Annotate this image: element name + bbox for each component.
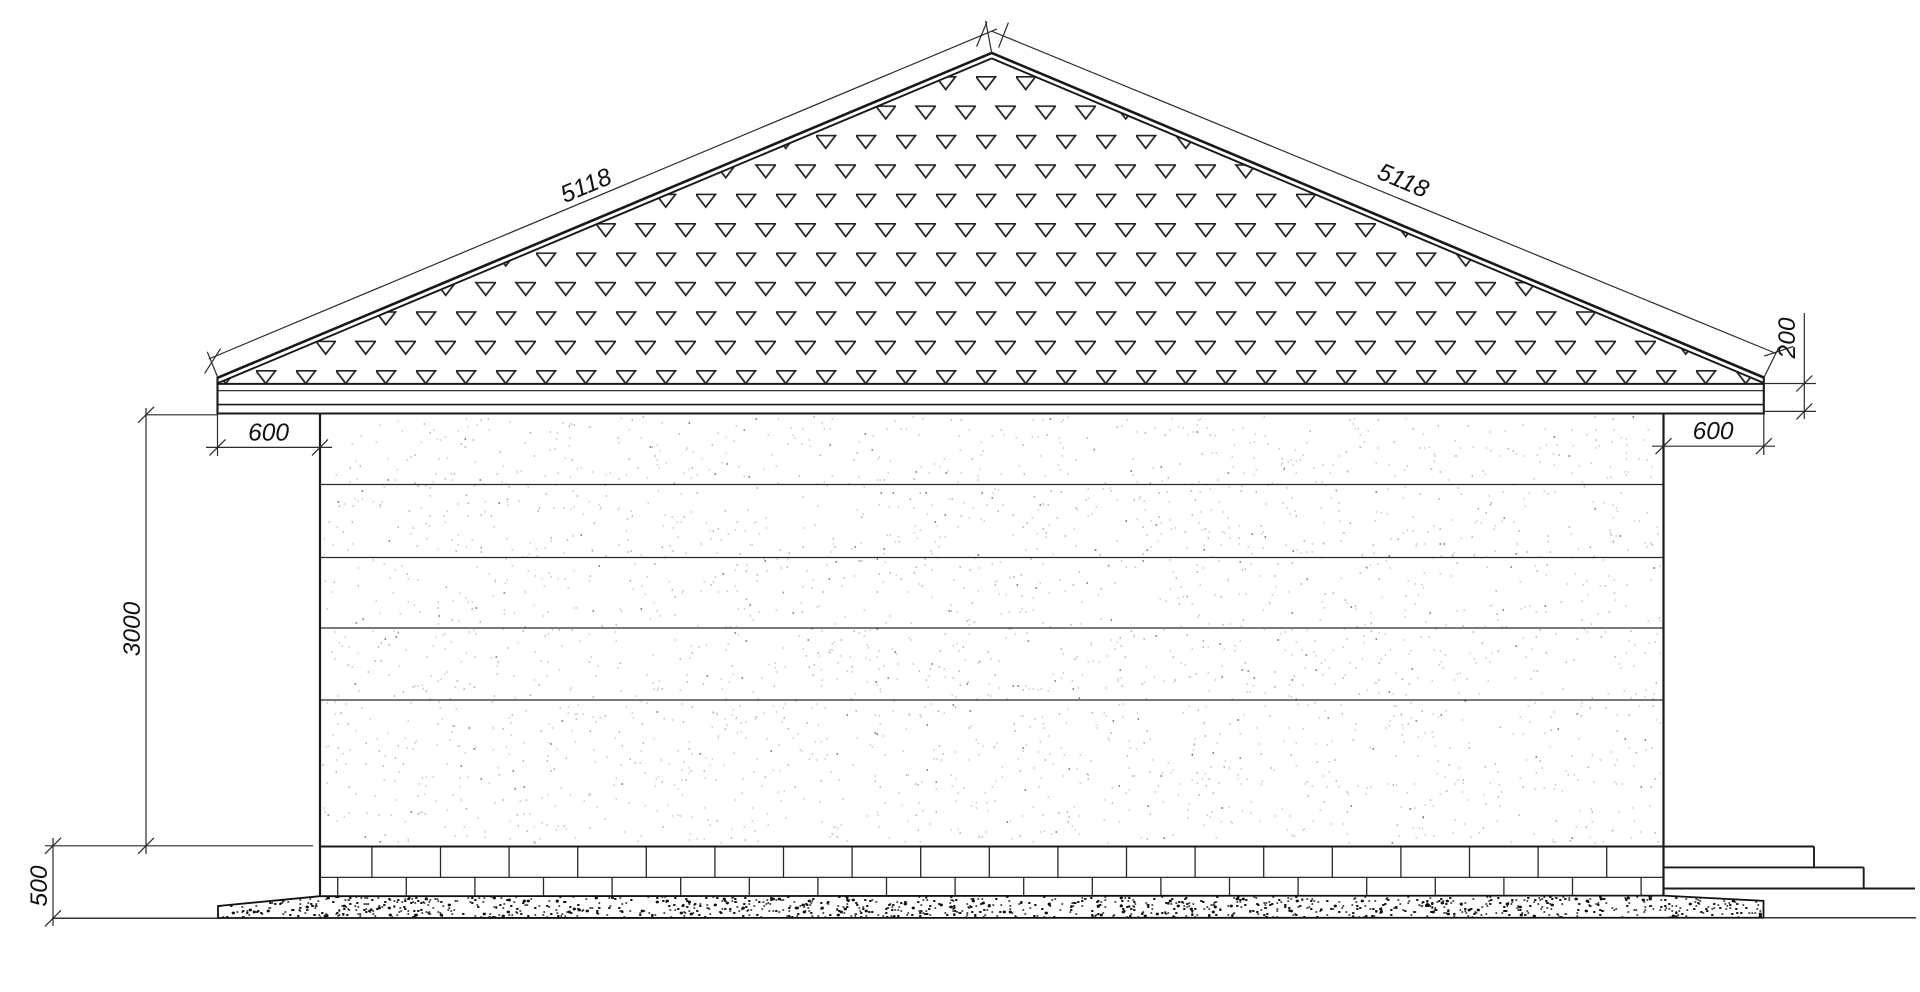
svg-text:600: 600 bbox=[1693, 418, 1734, 445]
svg-text:200: 200 bbox=[1774, 317, 1801, 359]
svg-text:3000: 3000 bbox=[119, 601, 146, 656]
svg-text:600: 600 bbox=[248, 419, 289, 446]
svg-text:500: 500 bbox=[26, 865, 53, 906]
